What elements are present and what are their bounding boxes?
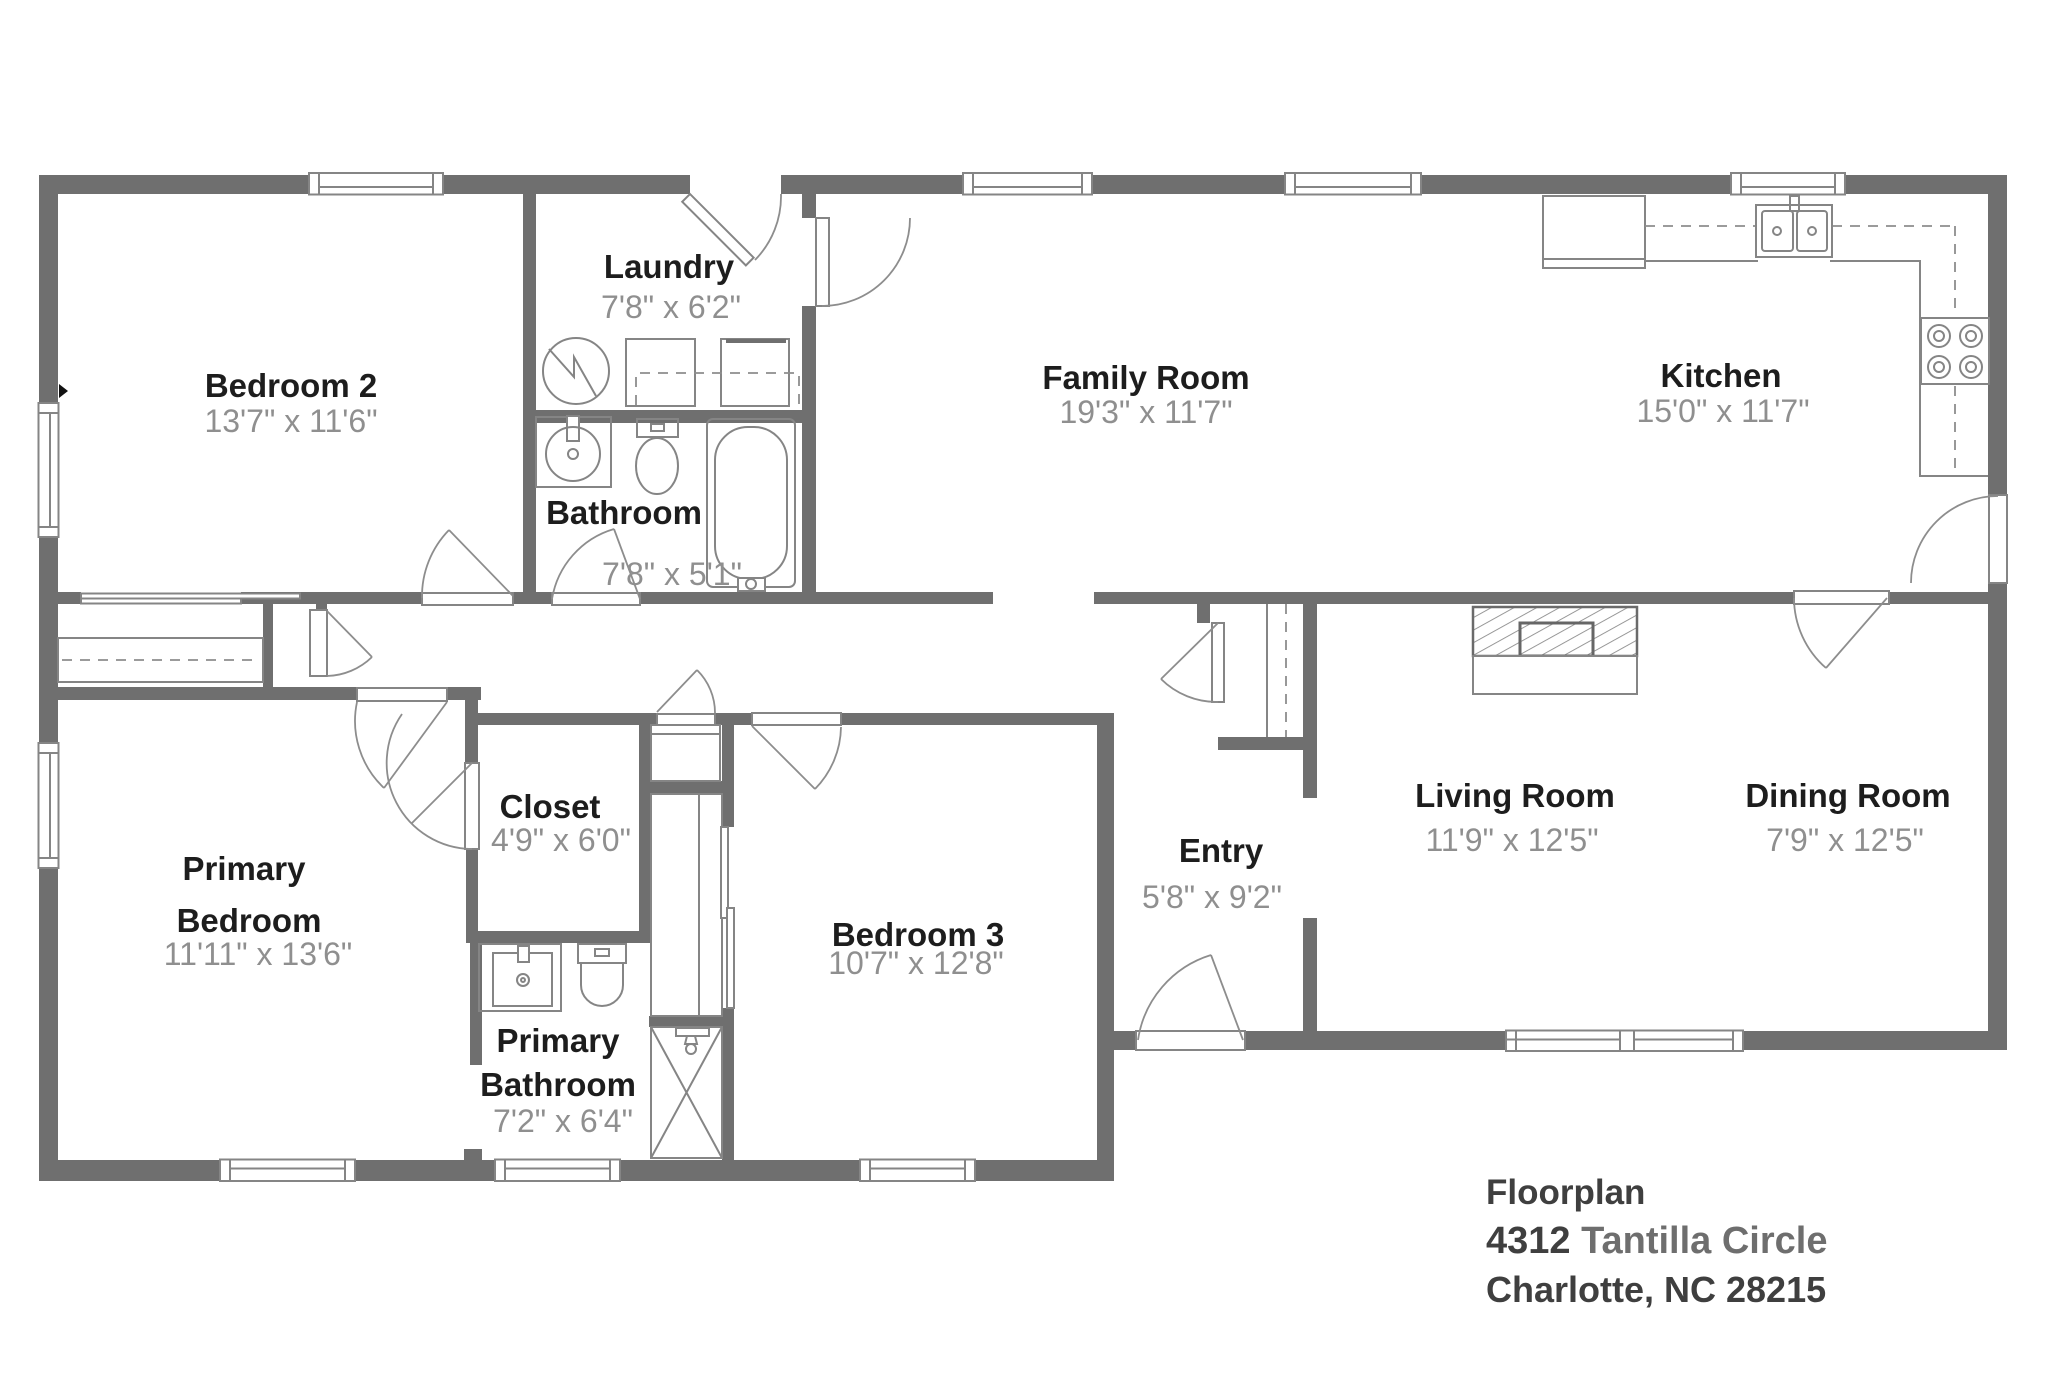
svg-text:Entry: Entry <box>1179 832 1264 869</box>
svg-text:7'9" x 12'5": 7'9" x 12'5" <box>1766 822 1924 858</box>
svg-text:4312 Tantilla Circle: 4312 Tantilla Circle <box>1486 1220 1827 1262</box>
svg-text:Bathroom: Bathroom <box>480 1066 636 1103</box>
svg-text:11'9" x 12'5": 11'9" x 12'5" <box>1425 822 1598 858</box>
svg-text:Bathroom: Bathroom <box>546 494 702 531</box>
svg-text:7'2" x 6'4": 7'2" x 6'4" <box>493 1103 633 1139</box>
svg-text:Laundry: Laundry <box>604 248 735 285</box>
svg-text:5'8" x 9'2": 5'8" x 9'2" <box>1142 879 1282 915</box>
svg-text:10'7" x 12'8": 10'7" x 12'8" <box>828 945 1004 981</box>
svg-text:Closet: Closet <box>500 788 601 825</box>
svg-text:Living Room: Living Room <box>1415 777 1615 814</box>
svg-text:Charlotte, NC 28215: Charlotte, NC 28215 <box>1486 1269 1826 1310</box>
svg-text:13'7" x 11'6": 13'7" x 11'6" <box>204 403 377 439</box>
svg-text:19'3" x 11'7": 19'3" x 11'7" <box>1059 394 1232 430</box>
svg-text:4'9" x 6'0": 4'9" x 6'0" <box>491 822 631 858</box>
svg-text:Primary: Primary <box>183 850 307 887</box>
svg-text:Dining Room: Dining Room <box>1745 777 1950 814</box>
svg-text:Floorplan: Floorplan <box>1486 1173 1645 1212</box>
svg-text:7'8" x 5'1": 7'8" x 5'1" <box>602 556 742 592</box>
svg-text:15'0" x 11'7": 15'0" x 11'7" <box>1636 393 1809 429</box>
svg-text:Kitchen: Kitchen <box>1660 357 1781 394</box>
svg-text:Bedroom 2: Bedroom 2 <box>205 367 377 404</box>
svg-text:Primary: Primary <box>497 1022 621 1059</box>
svg-text:Bedroom: Bedroom <box>177 902 322 939</box>
svg-text:7'8" x 6'2": 7'8" x 6'2" <box>601 289 741 325</box>
svg-text:Family Room: Family Room <box>1042 359 1249 396</box>
svg-text:11'11" x 13'6": 11'11" x 13'6" <box>164 936 353 972</box>
